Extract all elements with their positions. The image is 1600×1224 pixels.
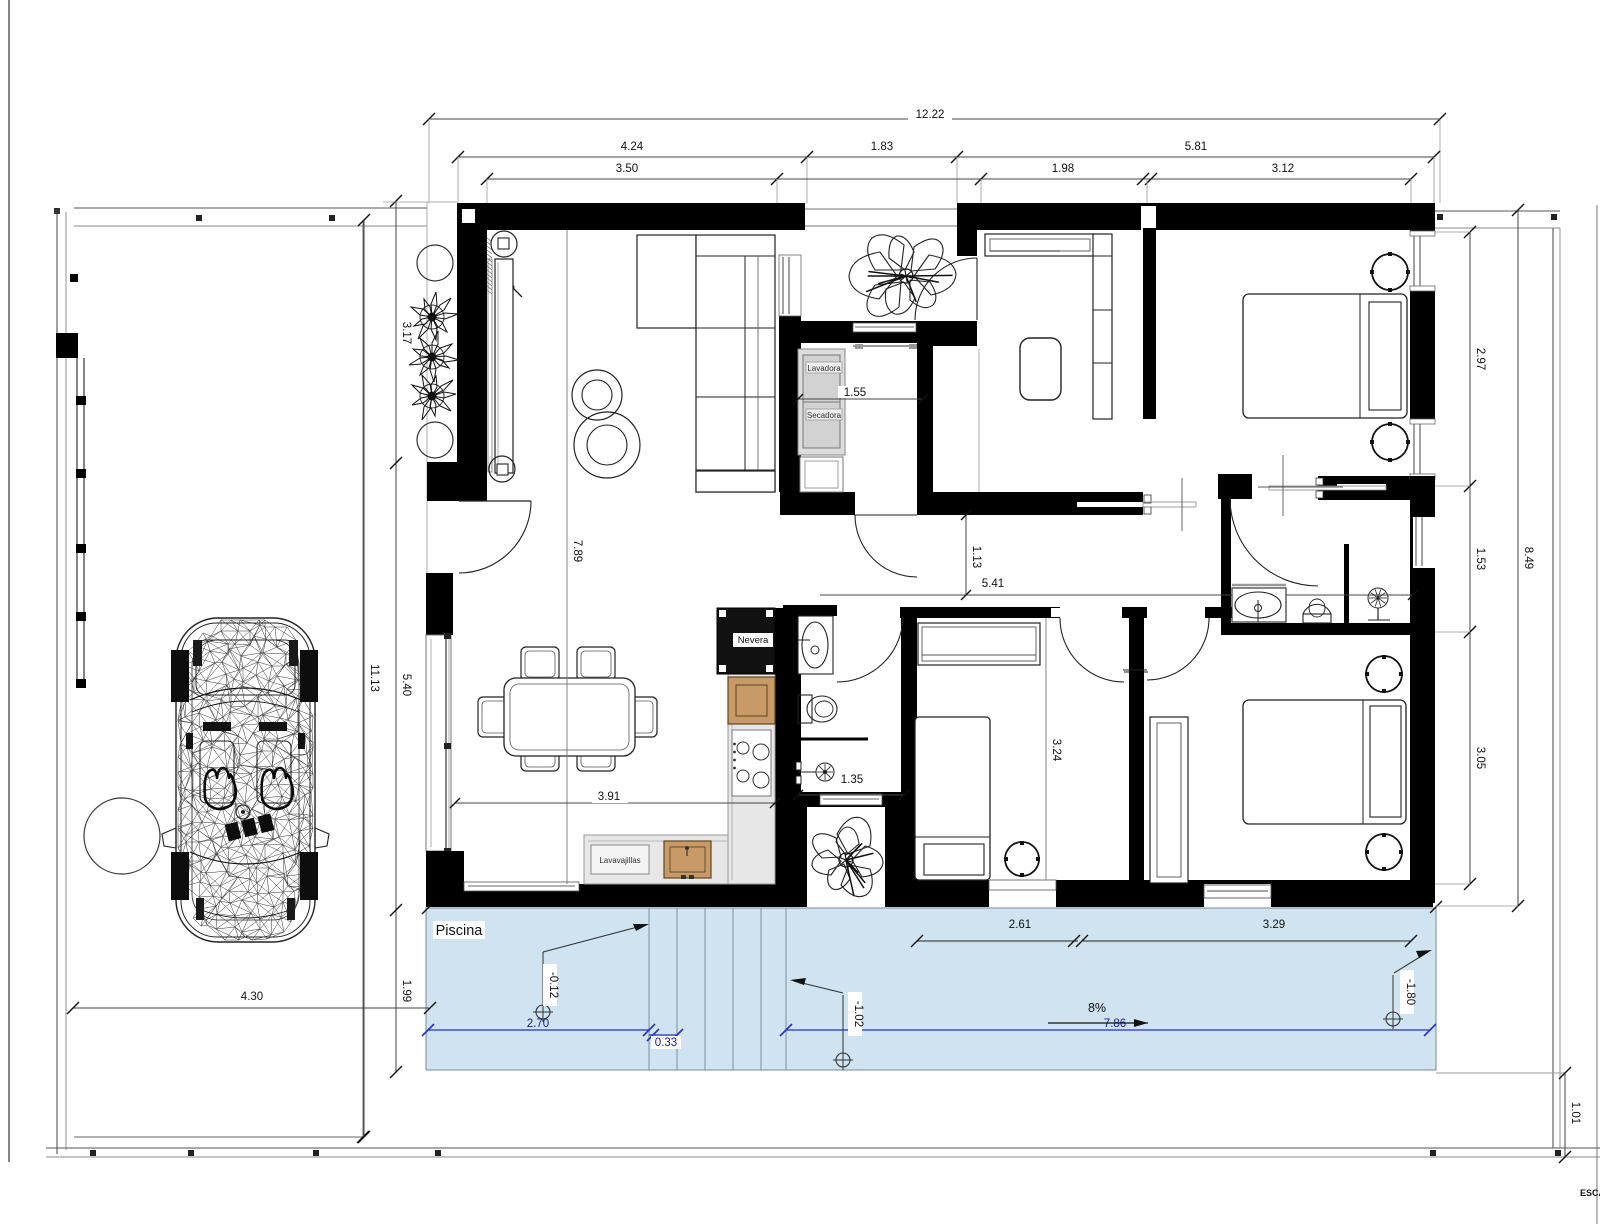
- svg-text:8.49: 8.49: [1522, 547, 1534, 569]
- svg-text:8%: 8%: [1088, 1001, 1106, 1015]
- svg-text:3.29: 3.29: [1263, 919, 1285, 931]
- svg-text:4.30: 4.30: [241, 991, 263, 1003]
- svg-text:-0.12: -0.12: [547, 972, 559, 998]
- svg-text:7.89: 7.89: [571, 540, 583, 562]
- svg-text:11.13: 11.13: [368, 664, 380, 692]
- svg-text:7.86: 7.86: [1104, 1018, 1126, 1030]
- svg-text:Secadora: Secadora: [807, 411, 842, 420]
- svg-text:Nevera: Nevera: [738, 635, 769, 646]
- svg-text:-1.80: -1.80: [1404, 979, 1416, 1005]
- svg-text:-1.02: -1.02: [852, 1001, 864, 1027]
- svg-text:1.98: 1.98: [1052, 163, 1074, 175]
- svg-text:1.01: 1.01: [1569, 1102, 1581, 1124]
- svg-text:1.55: 1.55: [844, 387, 866, 399]
- svg-text:2.70: 2.70: [527, 1018, 549, 1030]
- svg-text:1.83: 1.83: [871, 141, 893, 153]
- svg-text:3.12: 3.12: [1272, 163, 1294, 175]
- svg-text:5.81: 5.81: [1185, 141, 1207, 153]
- svg-text:5.40: 5.40: [400, 674, 412, 696]
- svg-text:0.33: 0.33: [655, 1037, 677, 1049]
- svg-text:1.13: 1.13: [970, 546, 982, 568]
- svg-text:4.24: 4.24: [621, 141, 644, 153]
- svg-text:2.61: 2.61: [1009, 919, 1031, 931]
- svg-text:1.35: 1.35: [841, 774, 863, 786]
- svg-text:3.05: 3.05: [1474, 747, 1486, 769]
- svg-text:1.53: 1.53: [1474, 548, 1486, 570]
- svg-text:2.97: 2.97: [1474, 348, 1486, 370]
- svg-text:Lavavajillas: Lavavajillas: [599, 856, 640, 865]
- svg-text:3.24: 3.24: [1050, 739, 1062, 762]
- svg-text:Lavadora: Lavadora: [807, 364, 841, 373]
- svg-text:5.41: 5.41: [982, 578, 1004, 590]
- svg-text:3.91: 3.91: [598, 791, 620, 803]
- svg-text:12.22: 12.22: [916, 109, 945, 121]
- svg-text:3.17: 3.17: [400, 322, 412, 344]
- svg-text:1.99: 1.99: [400, 980, 412, 1002]
- svg-text:ESCAL: ESCAL: [1580, 1188, 1600, 1198]
- svg-text:3.50: 3.50: [616, 163, 638, 175]
- svg-text:Piscina: Piscina: [436, 923, 484, 939]
